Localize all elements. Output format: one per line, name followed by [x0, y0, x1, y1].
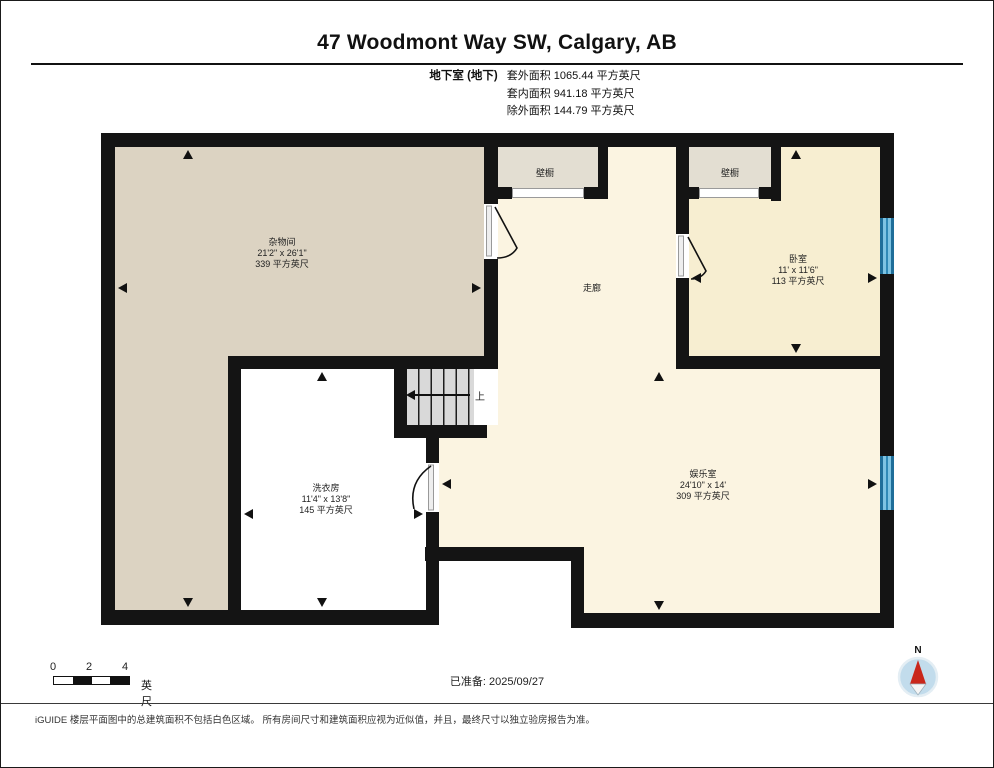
room-name: 卧室: [738, 254, 858, 265]
door-leaf: [679, 236, 684, 276]
room-label-closet-2: 壁橱: [690, 166, 770, 179]
scale-tick: 0: [50, 661, 56, 673]
compass-icon: N: [894, 639, 942, 701]
door-leaf: [487, 206, 492, 256]
dim-arrow-icon: [868, 479, 877, 489]
room-label-corridor: 走廊: [552, 281, 632, 294]
room-area: 339 平方英尺: [222, 259, 342, 270]
footer-divider: [1, 703, 993, 704]
disclaimer-text: iGUIDE 楼层平面图中的总建筑面积不包括白色区域。 所有房间尺寸和建筑面积应…: [35, 712, 595, 726]
dim-arrow-icon: [183, 150, 193, 159]
room-label-rec: 娱乐室 24'10" x 14' 309 平方英尺: [643, 469, 763, 502]
room-name: 洗衣房: [266, 483, 386, 494]
dim-arrow-icon: [791, 344, 801, 353]
room-dims: 11' x 11'6": [738, 265, 858, 276]
room-name: 娱乐室: [643, 469, 763, 480]
dim-arrow-icon: [791, 150, 801, 159]
dim-arrow-icon: [183, 598, 193, 607]
room-area: 145 平方英尺: [266, 505, 386, 516]
floorplan-page: 47 Woodmont Way SW, Calgary, AB 地下室 (地下)…: [0, 0, 994, 768]
door-leaf: [429, 465, 434, 510]
dim-arrow-icon: [868, 273, 877, 283]
dim-arrow-icon: [654, 372, 664, 381]
prepared-date: 已准备: 2025/09/27: [1, 673, 993, 689]
dim-arrow-icon: [692, 273, 701, 283]
scale-tick: 2: [86, 661, 92, 673]
scale-tick: 4: [122, 661, 128, 673]
dim-arrow-icon: [317, 598, 327, 607]
dim-arrow-icon: [118, 283, 127, 293]
dim-arrow-icon: [442, 479, 451, 489]
room-area: 113 平方英尺: [738, 276, 858, 287]
dim-arrow-icon: [414, 509, 423, 519]
room-dims: 11'4" x 13'8": [266, 494, 386, 505]
room-area: 309 平方英尺: [643, 491, 763, 502]
dim-arrow-icon: [317, 372, 327, 381]
dim-arrow-icon: [654, 601, 664, 610]
room-label-closet-1: 壁橱: [505, 166, 585, 179]
room-label-laundry: 洗衣房 11'4" x 13'8" 145 平方英尺: [266, 483, 386, 516]
room-label-bedroom: 卧室 11' x 11'6" 113 平方英尺: [738, 254, 858, 287]
door-swing-overlay: [1, 1, 994, 768]
room-dims: 21'2" x 26'1": [222, 248, 342, 259]
dim-arrow-icon: [472, 283, 481, 293]
compass-north-label: N: [914, 645, 921, 656]
dim-arrow-icon: [244, 509, 253, 519]
room-dims: 24'10" x 14': [643, 480, 763, 491]
room-name: 杂物间: [222, 237, 342, 248]
door-swing-arc: [495, 207, 517, 258]
room-label-storage: 杂物间 21'2" x 26'1" 339 平方英尺: [222, 237, 342, 270]
